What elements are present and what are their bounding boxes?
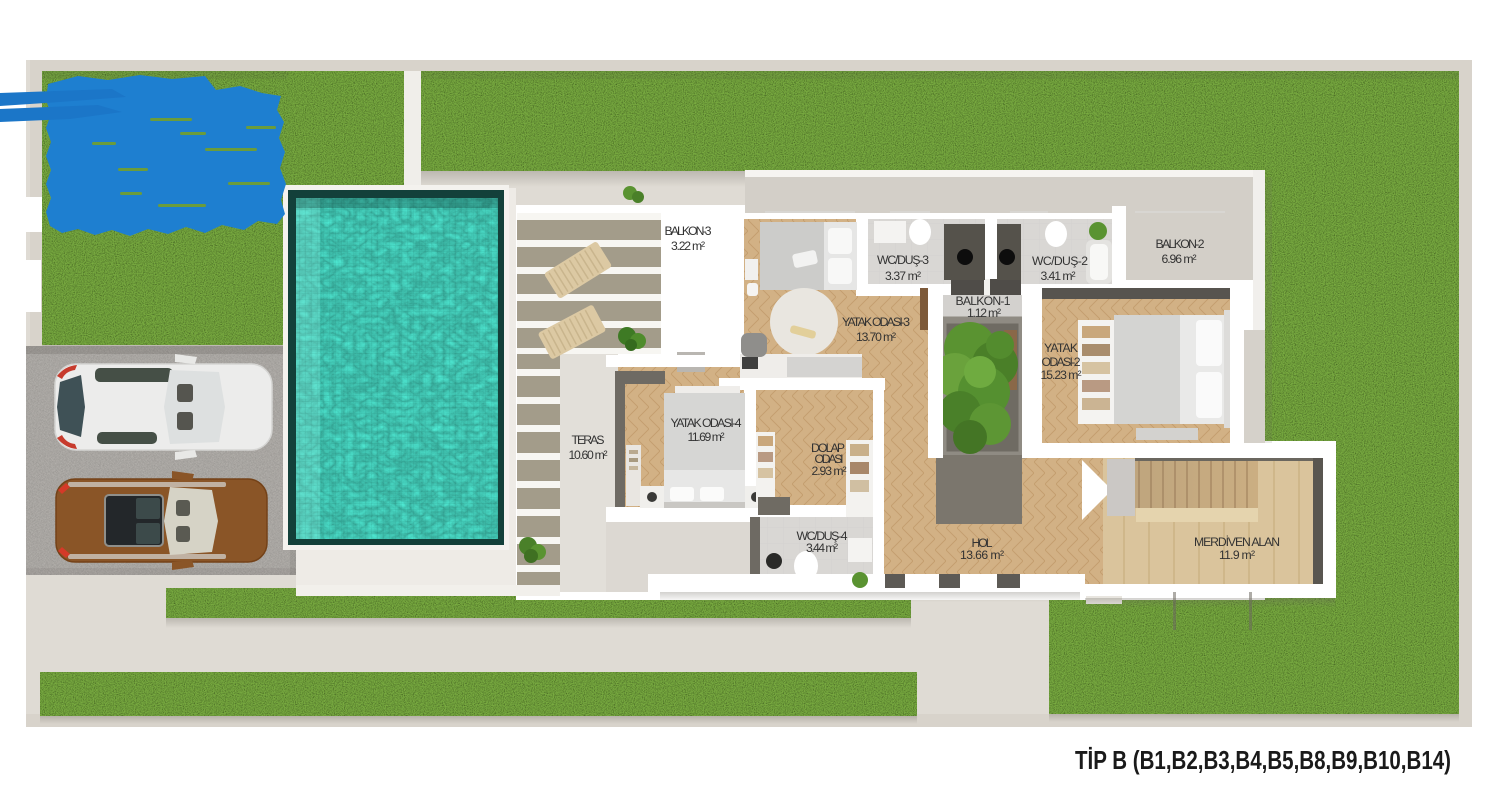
svg-text:11.69 m²: 11.69 m² xyxy=(688,430,725,444)
svg-text:13.66 m²: 13.66 m² xyxy=(960,548,1004,562)
svg-text:6.96 m²: 6.96 m² xyxy=(1162,252,1197,266)
svg-text:10.60 m²: 10.60 m² xyxy=(569,448,608,462)
svg-text:TERAS: TERAS xyxy=(572,433,605,447)
svg-text:BALKON-2: BALKON-2 xyxy=(1156,237,1205,251)
svg-text:WC/DUŞ-3: WC/DUŞ-3 xyxy=(877,253,929,267)
svg-text:ODASI-2: ODASI-2 xyxy=(1042,355,1081,369)
svg-text:YATAK ODASI-3: YATAK ODASI-3 xyxy=(842,315,910,329)
svg-text:WC/DUŞ-2: WC/DUŞ-2 xyxy=(1032,254,1088,268)
svg-text:15.23 m²: 15.23 m² xyxy=(1041,368,1082,382)
svg-text:BALKON-3: BALKON-3 xyxy=(665,224,712,238)
svg-text:3.22 m²: 3.22 m² xyxy=(671,239,705,253)
svg-text:YATAK ODASI-4: YATAK ODASI-4 xyxy=(671,416,742,430)
svg-text:MERDİVEN ALAN: MERDİVEN ALAN xyxy=(1194,535,1280,549)
svg-text:3.44 m²: 3.44 m² xyxy=(806,541,838,555)
svg-text:YATAK: YATAK xyxy=(1044,341,1078,355)
svg-text:2.93 m²: 2.93 m² xyxy=(812,464,847,478)
svg-text:3.37 m²: 3.37 m² xyxy=(885,269,921,283)
svg-text:13.70 m²: 13.70 m² xyxy=(856,330,896,344)
svg-text:3.41 m²: 3.41 m² xyxy=(1041,269,1076,283)
svg-text:11.9 m²: 11.9 m² xyxy=(1219,548,1255,562)
svg-text:TİP B (B1,B2,B3,B4,B5,B8,B9,B: TİP B (B1,B2,B3,B4,B5,B8,B9,B10,B14) xyxy=(1075,745,1451,775)
svg-text:1.12 m²: 1.12 m² xyxy=(967,306,1001,320)
